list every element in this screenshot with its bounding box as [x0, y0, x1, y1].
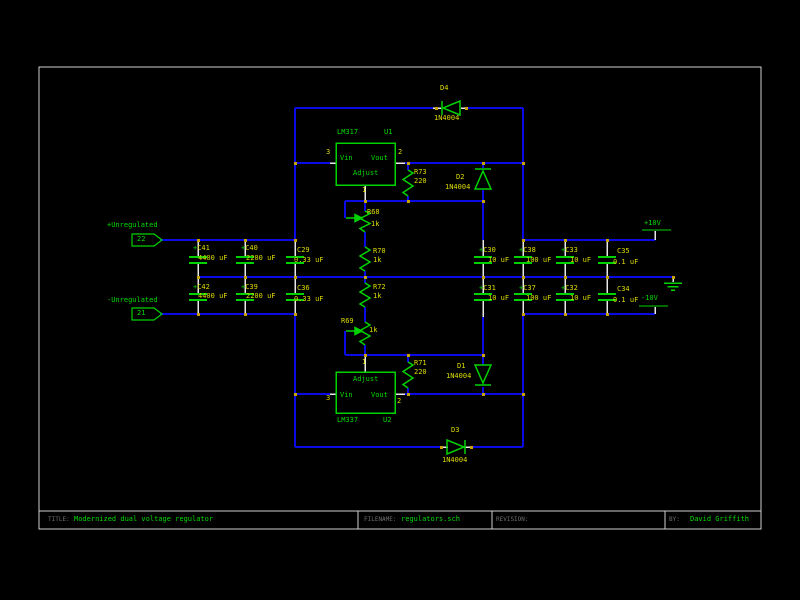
- resistor-r69-ref-label: R69: [341, 318, 354, 325]
- cap-c34-value-label: 0.1 uF: [613, 297, 638, 304]
- cap-c31-value-label: 10 uF: [488, 295, 509, 302]
- diode-d2-value-label: 1N4004: [445, 184, 470, 191]
- diode-d1-value-label: 1N4004: [446, 373, 471, 380]
- resistor-r71-ref-label: R71: [414, 360, 427, 367]
- u1-ref-label: U1: [384, 129, 392, 136]
- title-block-filename-label: FILENAME:: [364, 517, 397, 523]
- diode-d3-symbol: [447, 440, 465, 454]
- resistor-r73-value-label: 220: [414, 178, 427, 185]
- cap-c36-ref-label: C36: [297, 285, 310, 292]
- cap-c33-ref: C33: [565, 246, 578, 254]
- u2-pin2-number: 2: [397, 398, 401, 405]
- u1-pin3-number: 3: [326, 149, 330, 156]
- u1-vout-label: Vout: [371, 155, 388, 162]
- schematic-canvas: D4 1N4004 D2 1N4004 D1 1N4004 D3 1N4004 …: [0, 0, 800, 600]
- u2-part-label: LM337: [337, 417, 358, 424]
- diode-d2-ref-label: D2: [456, 174, 464, 181]
- cap-c40-ref-label: +C40: [241, 245, 258, 252]
- cap-c38-ref: C38: [523, 246, 536, 254]
- resistor-r69-value-label: 1k: [369, 327, 377, 334]
- u2-vout-label: Vout: [371, 392, 388, 399]
- cap-c39-value-label: 2200 uF: [246, 293, 276, 300]
- title-block-title: Modernized dual voltage regulator: [74, 516, 213, 523]
- cap-c29-value-label: 0.33 uF: [294, 257, 324, 264]
- cap-c30-ref: C30: [483, 246, 496, 254]
- cap-c42-ref-label: +C42: [193, 284, 210, 291]
- ground-icon: [664, 283, 682, 290]
- resistor-r68-value-label: 1k: [371, 221, 379, 228]
- resistor-r70-value-label: 1k: [373, 257, 381, 264]
- diode-d2-symbol: [475, 169, 491, 189]
- cap-c41-ref: C41: [197, 244, 210, 252]
- cap-c30-value-label: 10 uF: [488, 257, 509, 264]
- cap-c42-ref: C42: [197, 283, 210, 291]
- title-block-by: David Griffith: [690, 516, 749, 523]
- resistor-r72-value-label: 1k: [373, 293, 381, 300]
- resistor-r72-symbol: [360, 283, 370, 307]
- regulator-u1-box: [336, 143, 395, 185]
- cap-c35-ref-label: C35: [617, 248, 630, 255]
- resistor-r73-symbol: [403, 170, 413, 196]
- diode-d3-value-label: 1N4004: [442, 457, 467, 464]
- input-neg-label: -Unregulated: [107, 297, 158, 304]
- cap-c31-ref-label: +C31: [479, 285, 496, 292]
- cap-c32-value-label: 10 uF: [570, 295, 591, 302]
- net-wires: [160, 108, 673, 447]
- cap-c38-ref-label: +C38: [519, 247, 536, 254]
- cap-c29-ref-label: C29: [297, 247, 310, 254]
- u1-part-label: LM317: [337, 129, 358, 136]
- diode-d1-ref-label: D1: [457, 363, 465, 370]
- cap-c34-ref-label: C34: [617, 286, 630, 293]
- cap-c37-ref-label: +C37: [519, 285, 536, 292]
- u1-pin2-number: 2: [398, 149, 402, 156]
- cap-c41-ref-label: +C41: [193, 245, 210, 252]
- input-neg-pin-number: 21: [137, 310, 145, 317]
- cap-c42-value-label: 4400 uF: [198, 293, 228, 300]
- title-block-title-label: TITLE:: [48, 517, 70, 523]
- resistor-r71-value-label: 220: [414, 369, 427, 376]
- u1-vin-label: Vin: [340, 155, 353, 162]
- cap-c33-ref-label: +C33: [561, 247, 578, 254]
- input-pos-pin-number: 22: [137, 236, 145, 243]
- cap-c35-value-label: 0.1 uF: [613, 259, 638, 266]
- cap-c37-value-label: 100 uF: [526, 295, 551, 302]
- resistor-r70-symbol: [360, 247, 370, 271]
- cap-c37-ref: C37: [523, 284, 536, 292]
- diode-d4-ref-label: D4: [440, 85, 448, 92]
- cap-c40-ref: C40: [245, 244, 258, 252]
- cap-c41-value-label: 4400 uF: [198, 255, 228, 262]
- u2-vin-label: Vin: [340, 392, 353, 399]
- u2-adjust-label: Adjust: [353, 376, 378, 383]
- u1-pin1-number: 1: [362, 187, 366, 194]
- resistor-r70-ref-label: R70: [373, 248, 386, 255]
- u2-pin3-number: 3: [326, 395, 330, 402]
- title-block-filename: regulators.sch: [401, 516, 460, 523]
- cap-c40-value-label: 2200 uF: [246, 255, 276, 262]
- u2-ref-label: U2: [383, 417, 391, 424]
- cap-c31-ref: C31: [483, 284, 496, 292]
- cap-c39-ref: C39: [245, 283, 258, 291]
- resistor-r71-symbol: [403, 362, 413, 388]
- cap-c30-ref-label: +C30: [479, 247, 496, 254]
- input-pos-label: +Unregulated: [107, 222, 158, 229]
- pot-r68-wiper-arrow: [346, 215, 362, 222]
- cap-c36-value-label: 0.33 uF: [294, 296, 324, 303]
- resistor-r72-ref-label: R72: [373, 284, 386, 291]
- title-block-revision-label: REVISION:: [496, 517, 529, 523]
- pot-r69-wiper-arrow: [346, 328, 362, 335]
- resistor-r68-ref-label: R68: [367, 209, 380, 216]
- cap-c32-ref: C32: [565, 284, 578, 292]
- cap-c32-ref-label: +C32: [561, 285, 578, 292]
- cap-c38-value-label: 100 uF: [526, 257, 551, 264]
- diode-d4-symbol: [442, 101, 460, 115]
- resistor-r73-ref-label: R73: [414, 169, 427, 176]
- diode-d1-symbol: [475, 365, 491, 385]
- u2-pin1-number: 1: [362, 359, 366, 366]
- output-neg-label: -10V: [641, 295, 658, 302]
- cap-c39-ref-label: +C39: [241, 284, 258, 291]
- title-block-by-label: BY:: [669, 517, 680, 523]
- u1-adjust-label: Adjust: [353, 170, 378, 177]
- output-pos-label: +10V: [644, 220, 661, 227]
- cap-c33-value-label: 10 uF: [570, 257, 591, 264]
- diode-d3-ref-label: D3: [451, 427, 459, 434]
- diode-d4-value-label: 1N4004: [434, 115, 459, 122]
